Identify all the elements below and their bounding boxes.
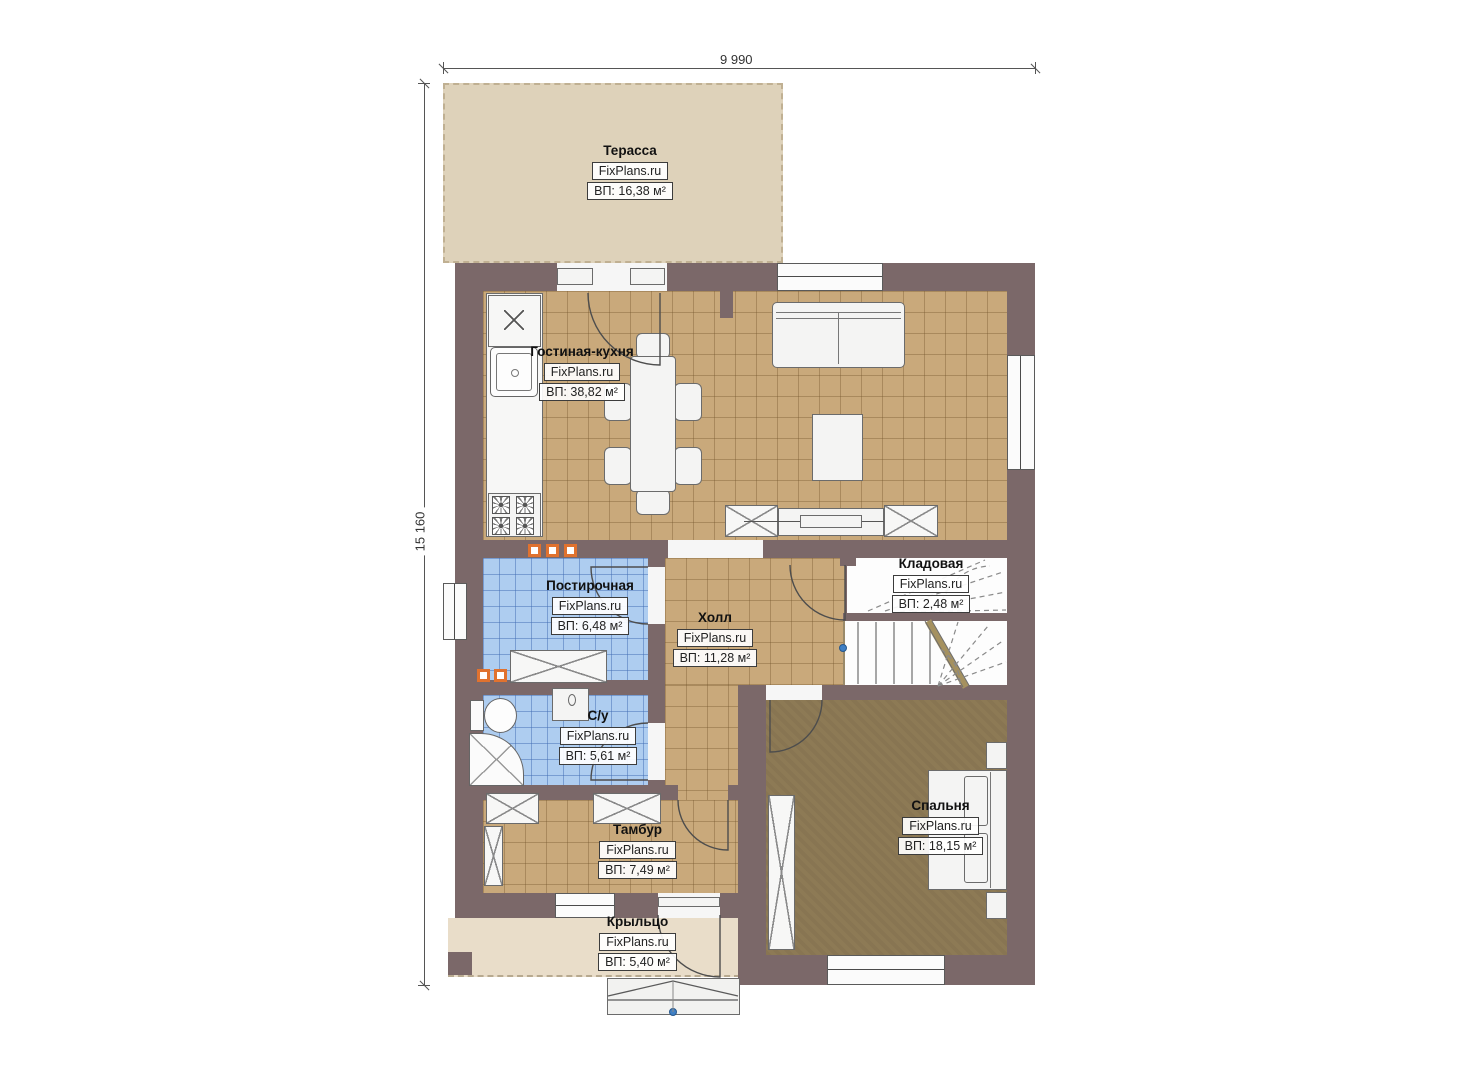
dimension-width-line [443, 68, 1035, 69]
laundry-window [443, 583, 467, 640]
watermark: FixPlans.ru [544, 363, 621, 381]
watermark: FixPlans.ru [552, 597, 629, 615]
room-name: Крыльцо [607, 914, 668, 929]
room-name: Постирочная [546, 578, 634, 593]
vent-marker [564, 544, 577, 557]
dining-chair [636, 489, 670, 515]
vestibule-cabinet [593, 793, 661, 824]
watermark: FixPlans.ru [592, 162, 669, 180]
stairs-floor [843, 621, 1009, 685]
vestibule-wardrobe [484, 826, 503, 886]
kitchen-x-mark [504, 310, 524, 330]
nightstand [986, 892, 1007, 919]
sofa-seat-divider [838, 312, 839, 364]
room-label-vestibule: Тамбур FixPlans.ru ВП: 7,49 м² [580, 822, 695, 879]
dining-chair [674, 447, 702, 485]
terrace-door-frame [557, 268, 593, 285]
anchor-dot [839, 644, 847, 652]
tv-cabinet [884, 505, 938, 537]
bathroom-door-opening [648, 723, 665, 780]
room-label-terrace: Терасса FixPlans.ru ВП: 16,38 м² [560, 143, 700, 200]
nightstand [986, 742, 1007, 769]
exterior-wall-top [667, 263, 777, 291]
room-name: Тамбур [613, 822, 662, 837]
room-label-hall: Холл FixPlans.ru ВП: 11,28 м² [660, 610, 770, 667]
wall-storage-stairs [843, 613, 1007, 621]
room-label-storage: Кладовая FixPlans.ru ВП: 2,48 м² [876, 556, 986, 613]
room-area: ВП: 5,40 м² [598, 953, 677, 971]
living-kitchen-floor [483, 291, 1007, 540]
room-area: ВП: 6,48 м² [551, 617, 630, 635]
watermark: FixPlans.ru [893, 575, 970, 593]
room-label-laundry: Постирочная FixPlans.ru ВП: 6,48 м² [525, 578, 655, 635]
dimension-height-label: 15 160 [412, 508, 427, 556]
room-label-bathroom: С/у FixPlans.ru ВП: 5,61 м² [548, 708, 648, 765]
room-area: ВП: 18,15 м² [898, 837, 984, 855]
room-name: Гостиная-кухня [530, 344, 633, 359]
coffee-table [812, 414, 863, 481]
toilet-bowl [484, 698, 517, 733]
stove-burner [492, 517, 510, 535]
room-area: ВП: 16,38 м² [587, 182, 673, 200]
watermark: FixPlans.ru [677, 629, 754, 647]
tv-screen [800, 515, 862, 528]
bedroom-window [827, 955, 945, 985]
wall-nub [840, 540, 856, 566]
room-area: ВП: 5,61 м² [559, 747, 638, 765]
bathroom-sink-faucet [568, 694, 576, 706]
wall-pier [720, 291, 733, 318]
wall-vestibule-bedroom [738, 685, 766, 985]
vent-marker [477, 669, 490, 682]
watermark: FixPlans.ru [560, 727, 637, 745]
room-name: Спальня [911, 798, 969, 813]
room-name: Кладовая [899, 556, 964, 571]
anchor-dot [669, 1008, 677, 1016]
room-label-bedroom: Спальня FixPlans.ru ВП: 18,15 м² [888, 798, 993, 855]
terrace-door-frame [630, 268, 665, 285]
washer-counter [510, 650, 607, 683]
room-name: Терасса [603, 143, 657, 158]
watermark: FixPlans.ru [599, 933, 676, 951]
room-area: ВП: 7,49 м² [598, 861, 677, 879]
room-label-living-kitchen: Гостиная-кухня FixPlans.ru ВП: 38,82 м² [512, 344, 652, 401]
vent-marker [494, 669, 507, 682]
vent-marker [546, 544, 559, 557]
room-label-porch: Крыльцо FixPlans.ru ВП: 5,40 м² [585, 914, 690, 971]
hall-corridor-floor [665, 685, 738, 800]
stove-burner [516, 496, 534, 514]
room-area: ВП: 2,48 м² [892, 595, 971, 613]
dimension-width-label: 9 990 [716, 52, 757, 67]
floor-plan-canvas: 9 990 15 160 [0, 0, 1474, 1080]
dining-chair [674, 383, 702, 421]
room-name: С/у [587, 708, 608, 723]
dining-chair [604, 447, 632, 485]
living-room-window-top [777, 263, 883, 291]
hall-opening [668, 540, 763, 558]
living-room-window-right [1007, 355, 1035, 470]
vestibule-cabinet [486, 793, 539, 824]
room-name: Холл [698, 610, 732, 625]
vent-marker [528, 544, 541, 557]
watermark: FixPlans.ru [902, 817, 979, 835]
entrance-door-leaf [658, 897, 720, 907]
stove-burner [516, 517, 534, 535]
watermark: FixPlans.ru [599, 841, 676, 859]
room-area: ВП: 38,82 м² [539, 383, 625, 401]
stove-burner [492, 496, 510, 514]
bedroom-door-opening [766, 685, 822, 700]
toilet-tank [470, 700, 484, 731]
porch-wall-stub [448, 952, 472, 975]
room-area: ВП: 11,28 м² [673, 649, 758, 667]
bedroom-wardrobe [768, 795, 795, 950]
